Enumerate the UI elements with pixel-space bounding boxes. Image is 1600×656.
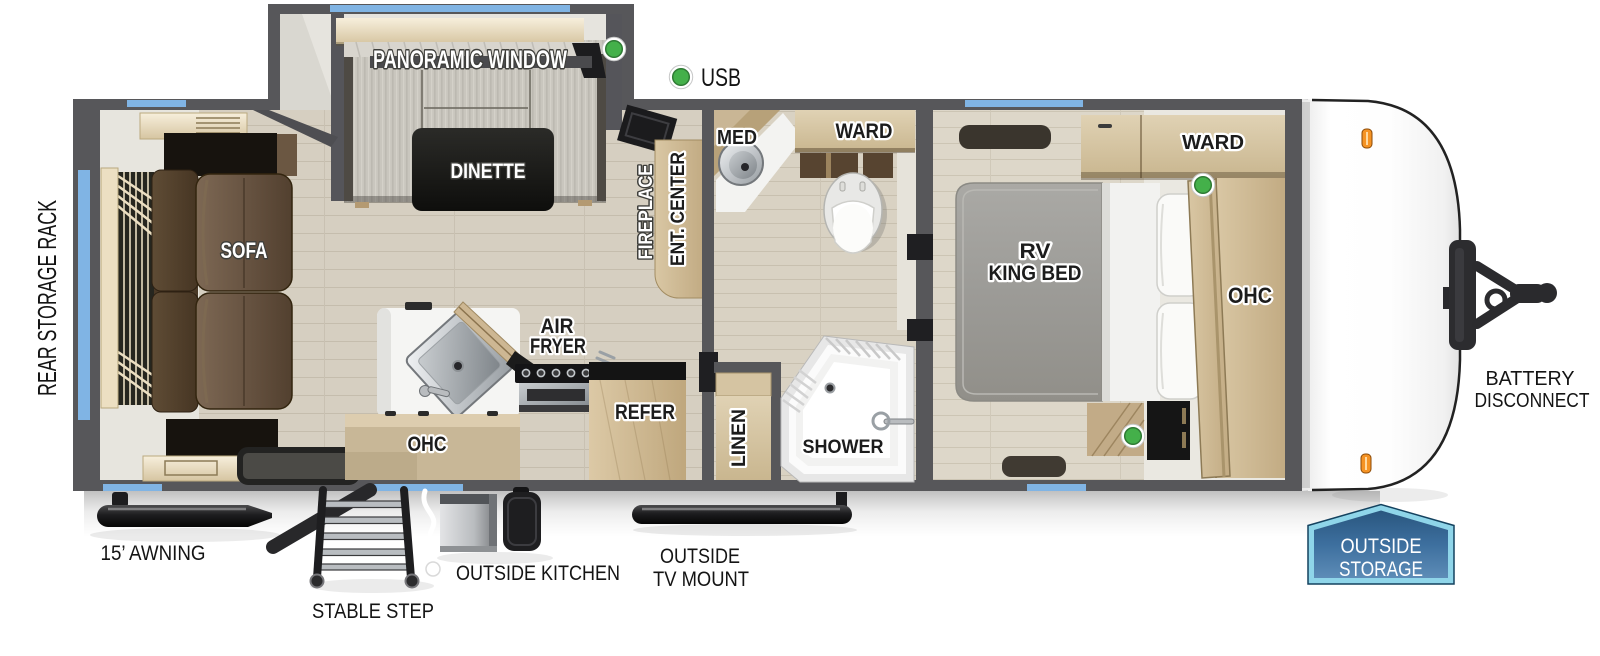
svg-text:MED: MED	[717, 127, 757, 149]
svg-text:FIREPLACE: FIREPLACE	[636, 165, 657, 260]
svg-text:KING BED: KING BED	[989, 262, 1082, 285]
svg-text:USB: USB	[701, 64, 741, 92]
svg-text:PANORAMIC WINDOW: PANORAMIC WINDOW	[373, 46, 567, 74]
svg-text:ENT. CENTER: ENT. CENTER	[668, 152, 689, 266]
svg-text:REFER: REFER	[615, 401, 675, 424]
svg-text:SOFA: SOFA	[221, 238, 268, 263]
svg-text:WARD: WARD	[836, 120, 893, 143]
svg-text:REAR STORAGE RACK: REAR STORAGE RACK	[32, 200, 62, 396]
svg-text:OUTSIDE KITCHEN: OUTSIDE KITCHEN	[456, 562, 620, 585]
svg-text:TV MOUNT: TV MOUNT	[653, 568, 749, 591]
svg-text:SHOWER: SHOWER	[803, 437, 884, 458]
svg-text:LINEN: LINEN	[729, 409, 750, 467]
svg-text:OHC: OHC	[408, 433, 447, 456]
svg-text:OHC: OHC	[1228, 283, 1272, 308]
svg-text:15’ AWNING: 15’ AWNING	[101, 542, 206, 565]
svg-text:FRYER: FRYER	[530, 335, 586, 358]
svg-text:OUTSIDE: OUTSIDE	[660, 545, 740, 568]
svg-text:RV: RV	[1020, 240, 1051, 263]
svg-text:DISCONNECT: DISCONNECT	[1475, 390, 1590, 412]
svg-text:WARD: WARD	[1182, 132, 1244, 154]
svg-text:BATTERY: BATTERY	[1486, 368, 1575, 390]
svg-text:DINETTE: DINETTE	[451, 160, 526, 183]
svg-text:STORAGE: STORAGE	[1339, 558, 1423, 581]
svg-text:STABLE STEP: STABLE STEP	[312, 600, 434, 623]
svg-text:OUTSIDE: OUTSIDE	[1341, 535, 1422, 558]
